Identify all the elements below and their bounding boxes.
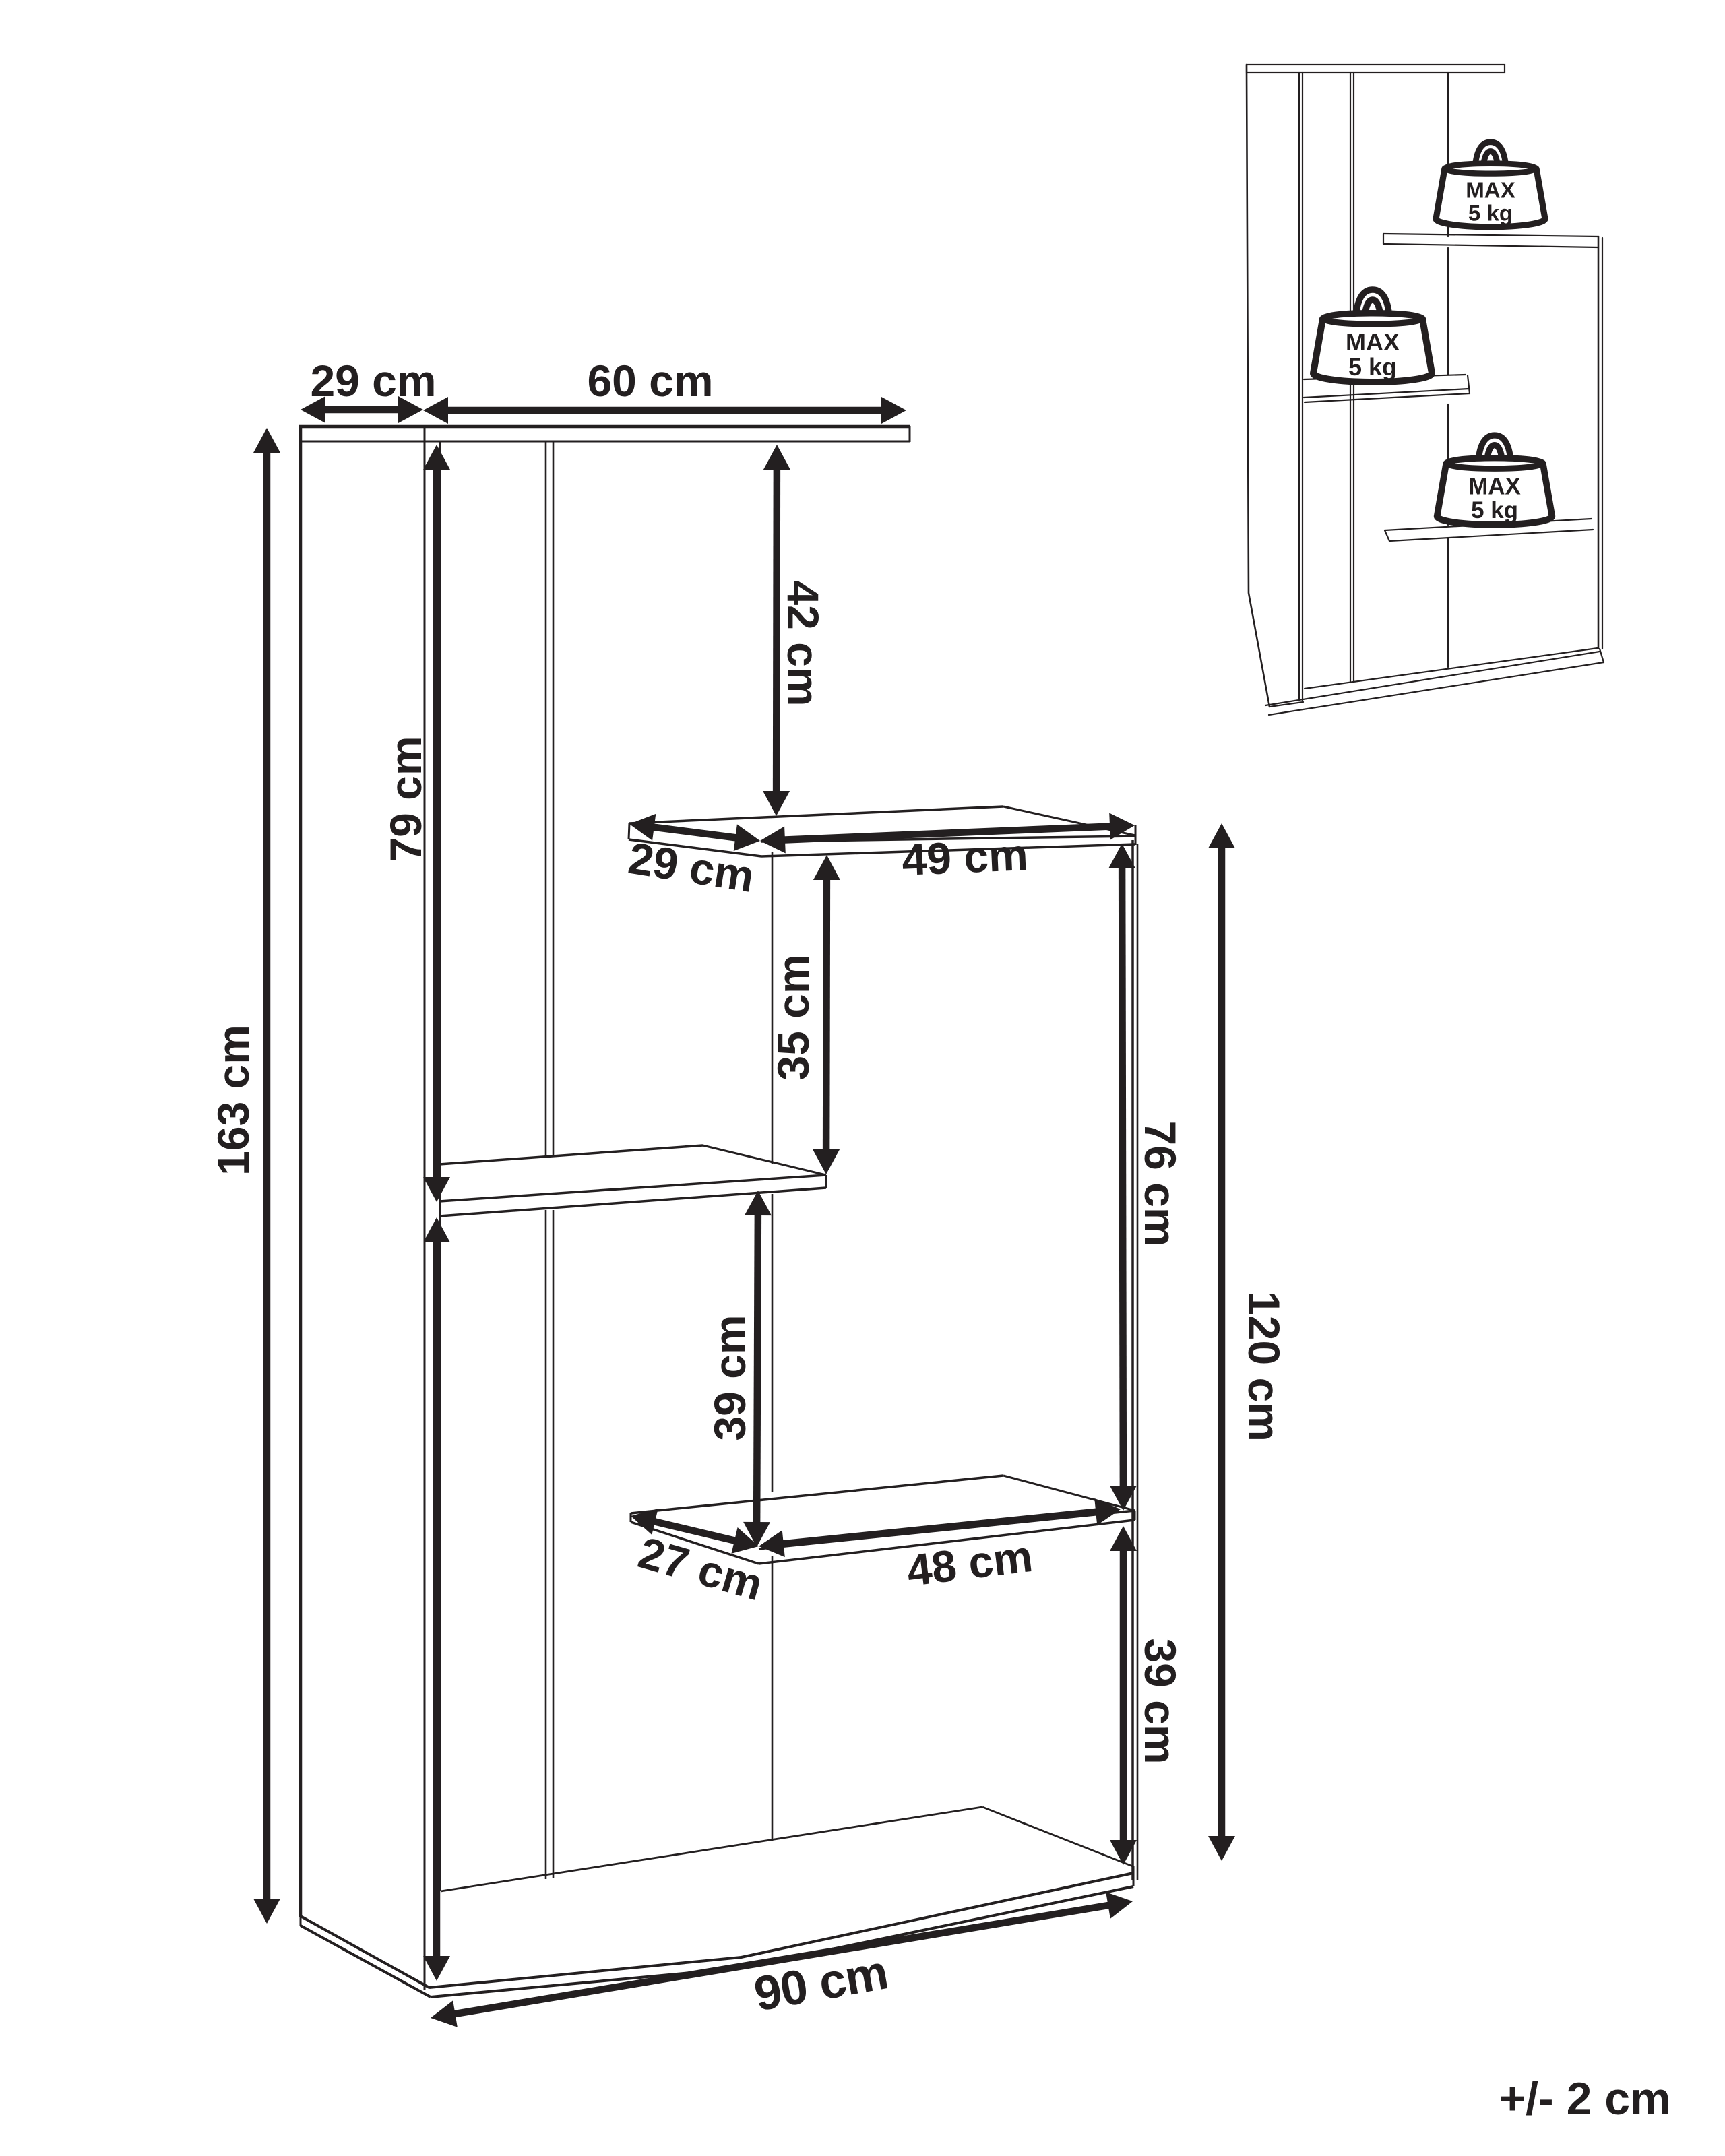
svg-text:29 cm: 29 cm bbox=[310, 356, 436, 406]
svg-text:120 cm: 120 cm bbox=[1239, 1291, 1289, 1442]
svg-text:MAX: MAX bbox=[1346, 328, 1400, 356]
svg-text:+/- 2 cm: +/- 2 cm bbox=[1499, 2073, 1670, 2124]
svg-text:39 cm: 39 cm bbox=[705, 1314, 755, 1440]
svg-text:76 cm: 76 cm bbox=[1135, 1120, 1185, 1246]
svg-text:MAX: MAX bbox=[1468, 473, 1521, 499]
svg-text:79 cm: 79 cm bbox=[381, 736, 431, 862]
svg-text:5 kg: 5 kg bbox=[1471, 497, 1518, 524]
svg-text:49 cm: 49 cm bbox=[901, 829, 1029, 885]
svg-text:39 cm: 39 cm bbox=[1135, 1638, 1185, 1764]
svg-text:163 cm: 163 cm bbox=[208, 1025, 258, 1176]
svg-text:60 cm: 60 cm bbox=[587, 356, 713, 406]
svg-text:MAX: MAX bbox=[1466, 179, 1515, 203]
svg-text:5 kg: 5 kg bbox=[1468, 201, 1513, 226]
svg-text:35 cm: 35 cm bbox=[768, 954, 818, 1080]
svg-text:42 cm: 42 cm bbox=[778, 580, 828, 706]
svg-text:5 kg: 5 kg bbox=[1348, 353, 1397, 381]
